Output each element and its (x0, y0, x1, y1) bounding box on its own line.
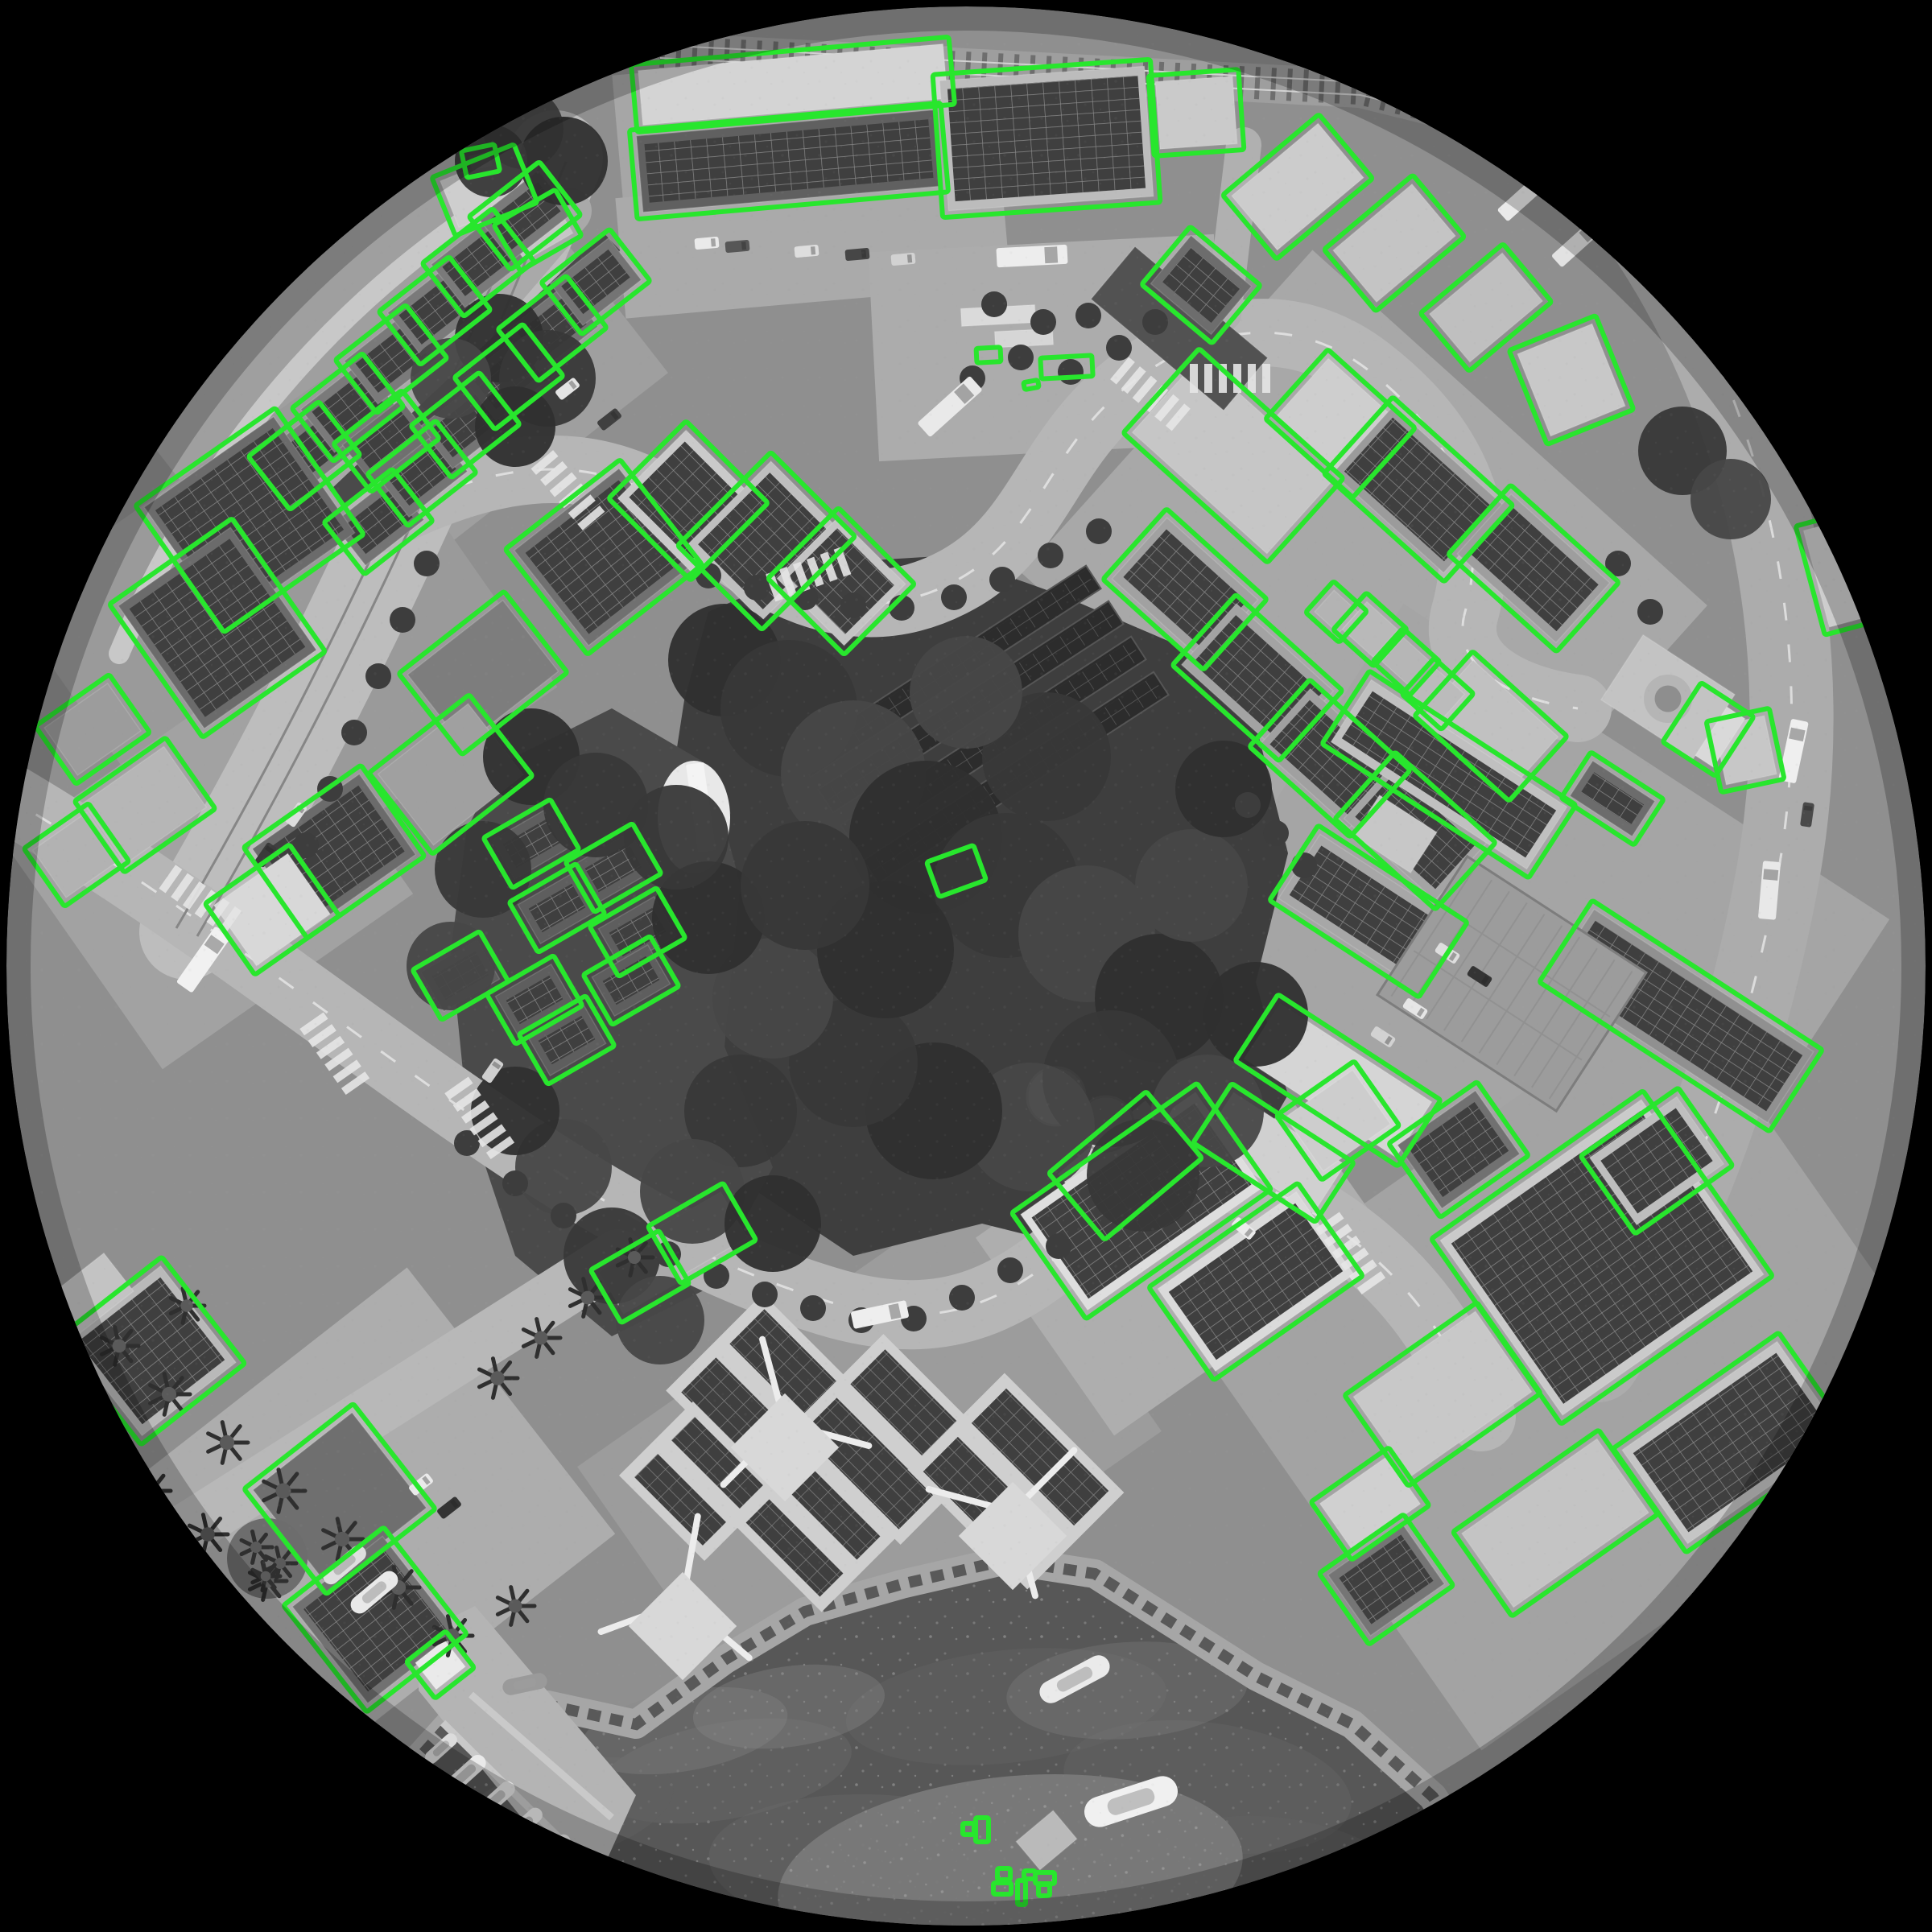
satellite-image-viewer (0, 0, 1932, 1932)
aerial-photo (0, 0, 1932, 1932)
